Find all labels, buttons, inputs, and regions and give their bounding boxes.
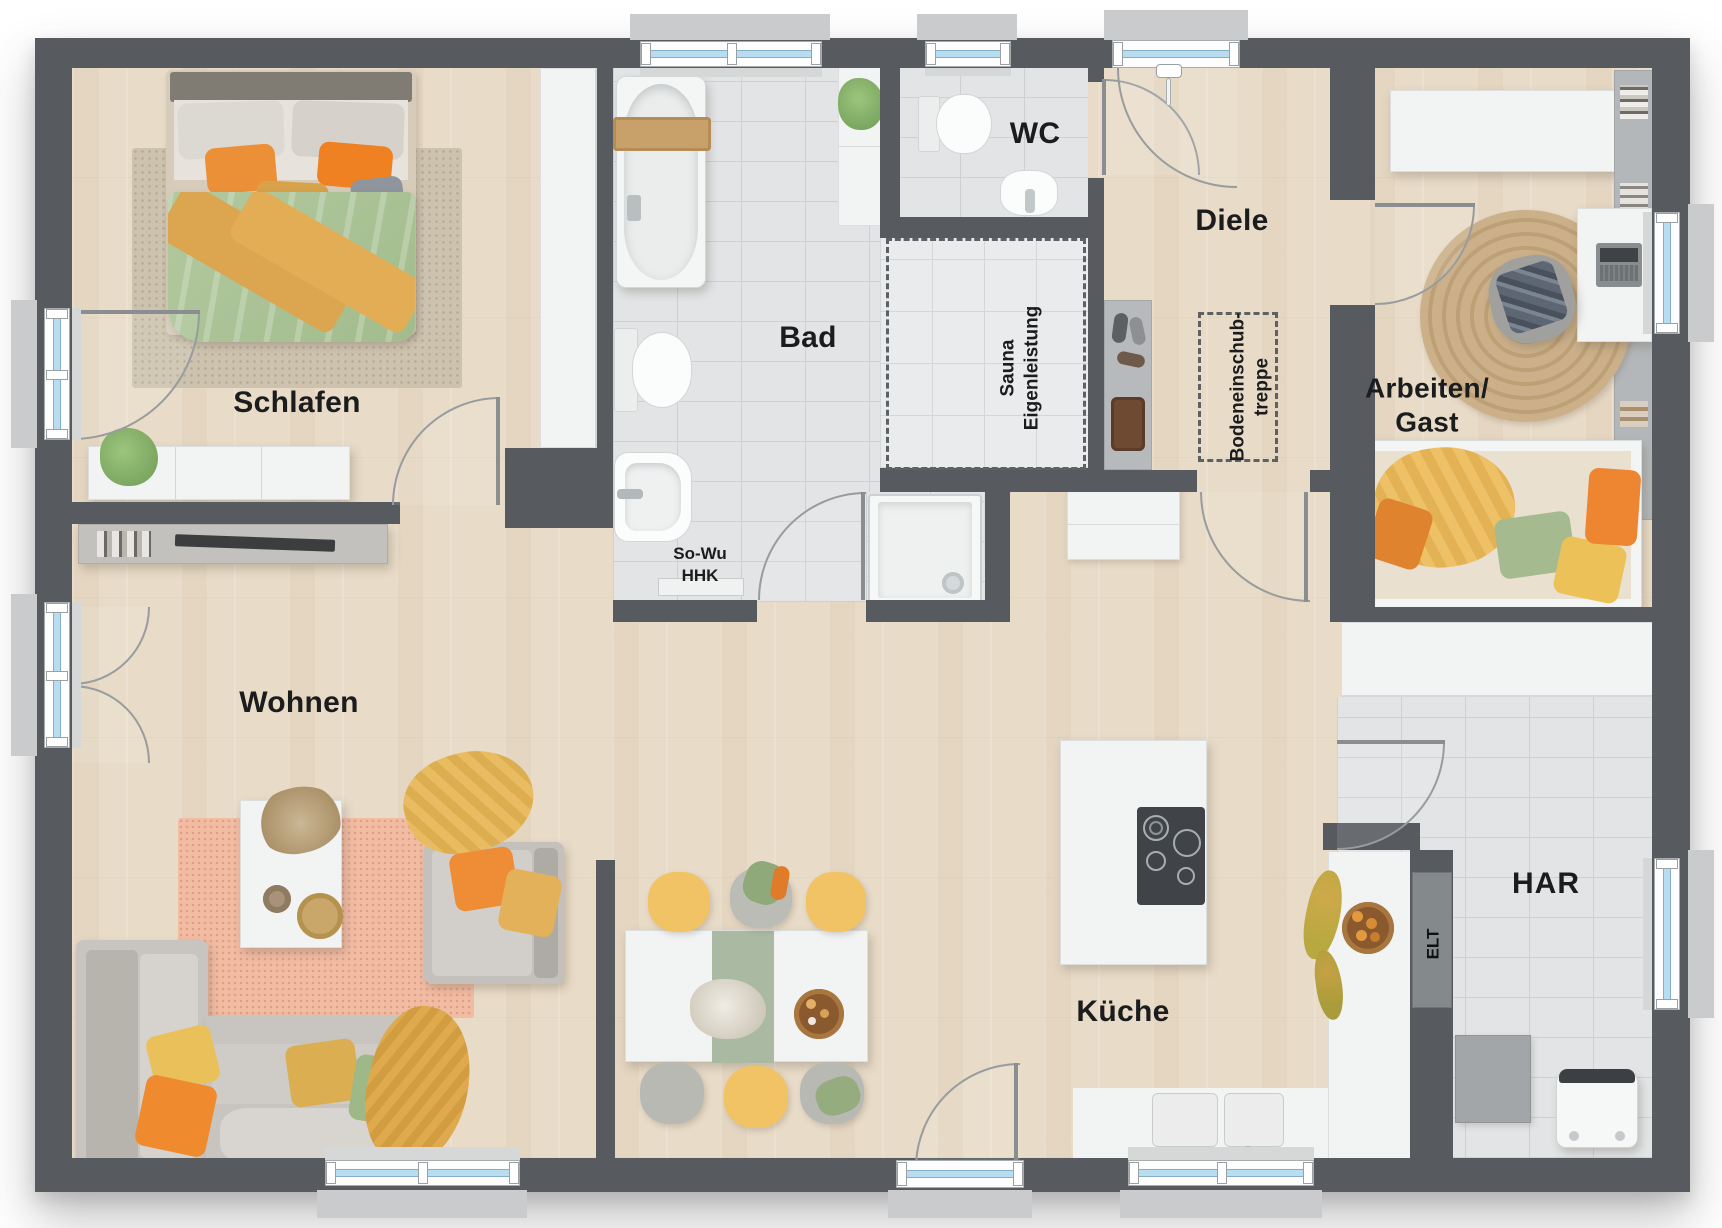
door-leaf [1375, 203, 1475, 207]
label-arbeiten-gast: Arbeiten/ Gast [1365, 371, 1489, 438]
wall [1104, 470, 1197, 492]
shoes [1128, 316, 1147, 346]
vase [263, 885, 291, 913]
deco-tray [297, 893, 343, 939]
window-sill [1120, 1190, 1322, 1218]
kitchen-sink [1152, 1093, 1218, 1147]
label-elt: ELT [1422, 929, 1443, 960]
window-sill [11, 594, 37, 756]
window-kueche [1128, 1160, 1314, 1186]
utility-unit [1455, 1035, 1531, 1123]
wall [1330, 68, 1375, 200]
bedroom-wardrobe [540, 68, 597, 448]
wall [1088, 178, 1104, 238]
wall [1330, 607, 1690, 622]
hall-sideboard [1067, 487, 1180, 560]
door-leaf [1337, 740, 1445, 744]
wall [72, 502, 400, 524]
window-sill [1688, 850, 1714, 1018]
wall-bottom [35, 1158, 1690, 1192]
bathroom-sink [614, 452, 692, 542]
serving-bowl [794, 989, 844, 1039]
window-bad [640, 41, 822, 67]
floor-plan: Schlafen Bad WC Diele Arbeiten/ Gast Woh… [0, 0, 1722, 1228]
shoes [1111, 312, 1129, 344]
window-har [1654, 858, 1680, 1010]
wall [880, 68, 900, 238]
entrance-door-handle [1156, 64, 1182, 78]
bath-caddy [613, 117, 711, 151]
door-leaf [861, 492, 865, 600]
flowers [690, 979, 766, 1039]
label-sauna: Sauna Eigenleistung [996, 306, 1044, 431]
sauna-area-box [886, 238, 1086, 470]
door-leaf [496, 397, 500, 505]
wall [597, 68, 613, 448]
desk [1577, 208, 1652, 342]
tv-lowboard [78, 524, 388, 564]
window-arbeiten [1654, 212, 1680, 334]
bathtub [616, 76, 706, 288]
toilet-wc-bowl [936, 94, 992, 154]
sofa-pillow-orange [133, 1073, 218, 1158]
bed-duvet [168, 192, 415, 342]
shower [868, 494, 982, 610]
bath-faucet [627, 195, 641, 221]
hall-console [1104, 300, 1152, 470]
books [1620, 85, 1648, 119]
daybed [1360, 440, 1642, 610]
dining-chair-yellow [724, 1066, 788, 1128]
inner-sill [72, 308, 81, 440]
window-sill [317, 1190, 527, 1218]
terrace-step [888, 1190, 1032, 1218]
cooktop [1137, 807, 1205, 905]
wall [1310, 470, 1330, 492]
wall [985, 492, 1010, 622]
window-schlafen [44, 308, 70, 440]
inner-sill [325, 1147, 520, 1160]
inner-sill [640, 68, 822, 77]
wall [596, 860, 615, 1158]
wall [880, 468, 1104, 492]
entrance-door-handle [1166, 78, 1171, 106]
bed-headboard [170, 72, 412, 102]
wc-sink [1000, 170, 1058, 216]
label-so-wu-hhk: So-Wu HHK [673, 543, 727, 587]
label-schlafen: Schlafen [233, 386, 360, 420]
plant [100, 428, 158, 486]
window-sill [917, 14, 1017, 40]
inner-sill [1128, 1147, 1314, 1160]
wall [1330, 305, 1375, 607]
door-leaf [72, 310, 200, 314]
door-leaf [1102, 79, 1106, 175]
label-bodeneinschubtreppe: Bodeneinschub- treppe [1226, 313, 1274, 462]
dining-chair-yellow [648, 872, 710, 932]
books [347, 531, 377, 557]
entrance-step [1104, 10, 1248, 40]
window-sill [630, 14, 830, 40]
plaid-pillow [1493, 258, 1569, 336]
window-wohnen [325, 1160, 520, 1186]
wall [505, 448, 613, 528]
inner-sill [1643, 212, 1652, 334]
inner-sill [1643, 858, 1652, 1010]
soundbar [175, 534, 335, 552]
window-sill [11, 300, 37, 448]
wall [866, 600, 985, 622]
label-wohnen: Wohnen [239, 686, 359, 720]
sink-faucet [617, 489, 643, 499]
coffee-table [240, 800, 342, 948]
shower-drain [942, 572, 964, 594]
office-sideboard [1390, 90, 1645, 172]
wall [896, 217, 1090, 238]
inner-sill [925, 68, 1011, 76]
dining-table [625, 930, 868, 1062]
inner-sill [72, 602, 81, 748]
window-sill [1688, 204, 1714, 342]
label-wc: WC [1010, 117, 1061, 151]
toilet-bad-bowl [632, 332, 692, 408]
laptop [1596, 243, 1642, 287]
wall [1088, 238, 1104, 468]
books [1620, 401, 1648, 427]
fruit-bowl [1342, 902, 1394, 954]
wall [613, 600, 757, 622]
label-bad: Bad [779, 321, 837, 355]
label-diele: Diele [1195, 204, 1268, 238]
wall-top [35, 38, 1690, 68]
window-wc [925, 41, 1011, 67]
plant [838, 78, 884, 130]
har-wardrobe [1341, 622, 1659, 697]
bag [1111, 397, 1145, 451]
armchair-pillow-mustard [497, 867, 564, 939]
dining-chair-yellow [806, 872, 866, 932]
kitchen-sink [1224, 1093, 1284, 1147]
door-leaf [1014, 1063, 1018, 1168]
door-leaf [1304, 492, 1308, 602]
terrace-door [896, 1160, 1024, 1188]
label-kueche: Küche [1076, 995, 1169, 1029]
dining-chair-gray [640, 1062, 704, 1124]
shoe [1116, 350, 1146, 369]
window-wohnen-left [44, 602, 70, 748]
label-har: HAR [1512, 867, 1580, 901]
books [97, 531, 151, 557]
daybed-pillow-orange [1584, 467, 1641, 546]
kitchen-island [1060, 740, 1207, 965]
washing-machine [1556, 1072, 1638, 1148]
